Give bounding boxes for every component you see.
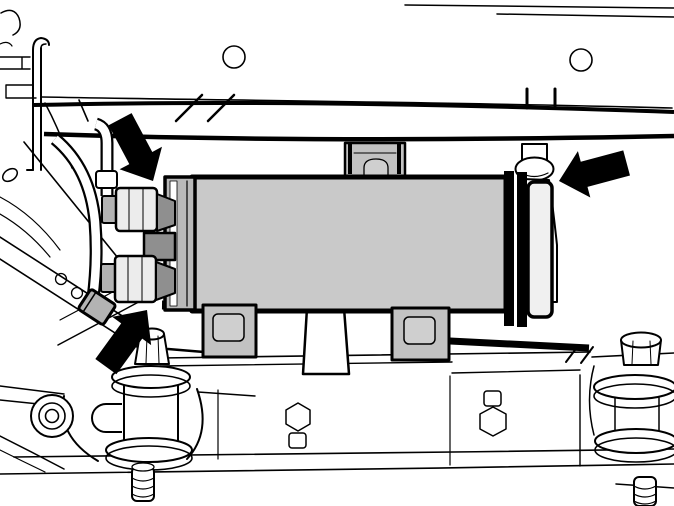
mount-bracket-curve <box>590 366 595 435</box>
crossmember-bottom-edge <box>0 464 674 474</box>
mount-stud <box>634 477 656 506</box>
bracket-square-hole <box>404 317 435 344</box>
bottom-mounting-bracket-left <box>203 305 256 357</box>
callout-arrow-return-pipe-icon <box>553 140 633 204</box>
truss-hole <box>72 288 83 299</box>
mount-eyelet <box>31 395 73 437</box>
square-emboss <box>289 433 306 448</box>
hose-elbow <box>78 289 116 325</box>
cooler-rib <box>517 172 527 327</box>
hex-emboss <box>480 407 506 436</box>
underbody-cooler-diagram <box>0 0 674 506</box>
mount-washer <box>112 366 190 388</box>
bottom-mounting-bracket-right <box>392 308 449 360</box>
bracket-arm <box>0 57 30 69</box>
bracket-hole <box>0 166 19 184</box>
stud-top <box>132 463 154 471</box>
corner-curve <box>0 42 12 46</box>
square-emboss <box>484 391 501 406</box>
corner-curve <box>1 10 20 35</box>
mount-bushing-sides <box>615 397 659 432</box>
bracket-flange <box>6 85 36 98</box>
fitting-cone <box>157 194 175 231</box>
tube-ferrule <box>96 171 117 188</box>
frame-arch-curve <box>0 436 64 469</box>
truss-curve <box>0 214 50 257</box>
fitting-hex-nut <box>115 256 156 302</box>
ledge-line <box>168 349 204 352</box>
rail-top-edge <box>34 103 674 112</box>
crossmember-top-edge <box>452 370 580 373</box>
frame-arch-curve <box>0 450 45 472</box>
cooler-rib <box>504 171 514 326</box>
fitting-hex-nut <box>116 188 157 231</box>
frame-hole <box>223 46 245 68</box>
mount-bolt-top <box>621 333 661 348</box>
cooler-end-plate <box>528 182 552 317</box>
mount-bushing <box>124 383 178 445</box>
frame-edge-line <box>405 5 674 8</box>
bracket-square-hole <box>213 314 244 341</box>
elbow-body <box>78 289 116 325</box>
body-mount-right <box>590 333 674 506</box>
hex-emboss <box>286 403 310 431</box>
frame-edge-line <box>497 14 674 17</box>
center-strap <box>303 308 349 374</box>
mounting-rail-heavy <box>450 341 589 348</box>
mount-tab <box>92 404 122 432</box>
cooler-body <box>192 177 506 311</box>
fitting-cone <box>156 262 175 300</box>
frame-hole <box>570 49 592 71</box>
technical-illustration <box>0 0 674 506</box>
